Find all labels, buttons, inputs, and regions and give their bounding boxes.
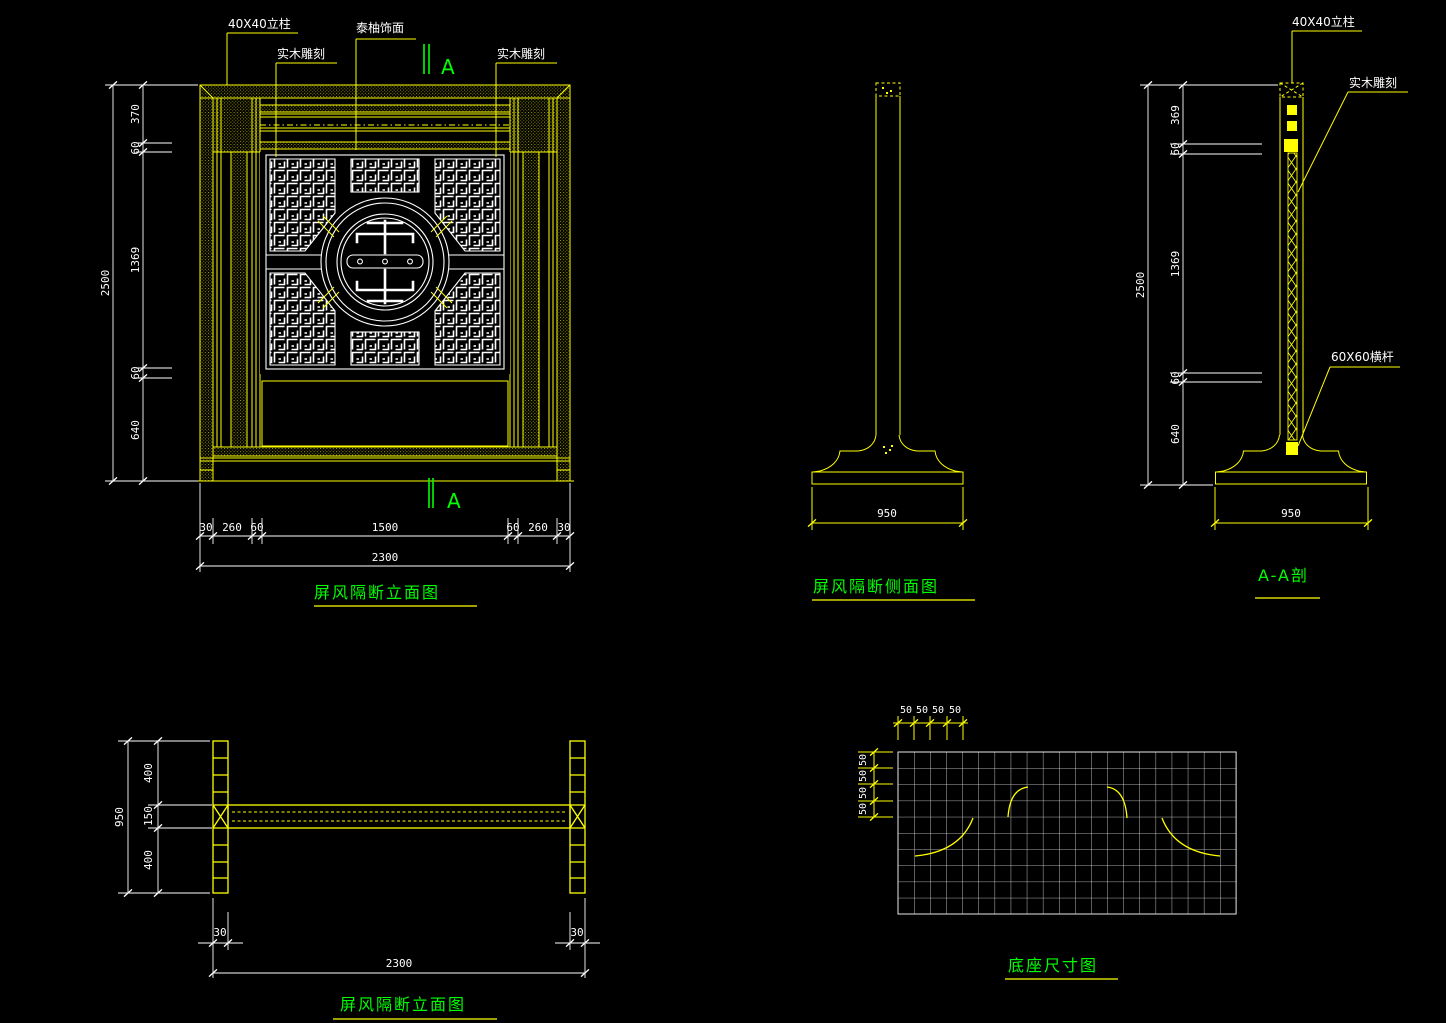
dim-w-260l: 260 [222, 521, 242, 534]
plan-cross-bar [228, 805, 570, 828]
aa-dim-369: 369 [1169, 105, 1182, 125]
base-top-50-1: 50 [900, 705, 912, 716]
front-left-dimensions: 2500 370 60 1369 60 640 [99, 81, 198, 484]
dim-w-260r: 260 [528, 521, 548, 534]
aa-lattice-strip [1288, 153, 1297, 440]
base-left-50-3: 50 [858, 787, 869, 799]
aa-block-1 [1287, 105, 1297, 115]
dim-seg-60a: 60 [129, 141, 142, 154]
dim-seg-640: 640 [129, 420, 142, 440]
plan-dim-30l: 30 [213, 926, 226, 939]
aa-callouts: 40X40立柱 实木雕刻 60X60横杆 [1292, 14, 1408, 446]
aa-rail-label: 60X60横杆 [1331, 350, 1394, 364]
side-width-dimension: 950 [808, 487, 967, 530]
plan-dim-950: 950 [113, 807, 126, 827]
side-view-title: 屏风隔断侧面图 [813, 577, 939, 596]
dim-w-1500: 1500 [372, 521, 399, 534]
cad-drawing: 40X40立柱 实木雕刻 泰柚饰面 实木雕刻 A A 2500 [0, 0, 1446, 1023]
cad-canvas: 40X40立柱 实木雕刻 泰柚饰面 实木雕刻 A A 2500 [0, 0, 1446, 1023]
plan-view: 950 400 150 400 30 30 2300 屏风隔断立面图 [113, 737, 600, 1019]
dim-w-30l: 30 [199, 521, 212, 534]
base-left-50-2: 50 [858, 770, 869, 782]
aa-dim-60a: 60 [1169, 142, 1182, 155]
callout-veneer-label: 泰柚饰面 [356, 20, 404, 35]
plan-bottom-dimensions: 30 30 2300 [198, 898, 600, 978]
aa-view-title: A-A剖 [1258, 566, 1309, 585]
aa-section-view: 40X40立柱 实木雕刻 60X60横杆 2500 [1134, 14, 1408, 598]
aa-dim-60b: 60 [1169, 371, 1182, 384]
plan-view-title: 屏风隔断立面图 [340, 995, 466, 1014]
callout-carving-left-label: 实木雕刻 [277, 46, 325, 61]
side-base-marks [883, 445, 893, 454]
section-letter-bottom: A [447, 489, 461, 513]
side-view: 950 屏风隔断侧面图 [808, 83, 975, 600]
base-left-dimensions: 50 50 50 50 [858, 748, 893, 820]
base-left-50-1: 50 [858, 754, 869, 766]
dim-seg-1369: 1369 [129, 247, 142, 274]
side-post-cap [876, 83, 900, 96]
aa-bottom-rail-block [1286, 442, 1298, 455]
aa-dim-1369: 1369 [1169, 251, 1182, 278]
front-view-title: 屏风隔断立面图 [314, 583, 440, 602]
section-mark-top: A [424, 44, 455, 79]
plan-dim-2300: 2300 [386, 957, 413, 970]
aa-block-3 [1284, 139, 1298, 152]
section-mark-bottom: A [429, 478, 461, 513]
callout-carving-right-label: 实木雕刻 [497, 46, 545, 61]
dim-w-60l: 60 [250, 521, 263, 534]
plan-dim-150: 150 [142, 806, 155, 826]
front-bottom-dimensions: 30 260 60 1500 60 260 30 2300 [196, 483, 574, 572]
side-base-profile [812, 435, 963, 484]
dim-w-30r: 30 [557, 521, 570, 534]
fret-band-bottom [351, 332, 419, 365]
aa-post-label: 40X40立柱 [1292, 14, 1355, 29]
plan-dim-400b: 400 [142, 850, 155, 870]
aa-dim-950: 950 [1281, 507, 1301, 520]
plan-left-post [213, 741, 228, 893]
plan-left-dimensions: 950 400 150 400 [113, 737, 212, 896]
dim-overall-width: 2300 [372, 551, 399, 564]
base-top-dimensions: 50 50 50 50 [893, 705, 968, 740]
frame-left-post [200, 98, 213, 481]
fret-band-top [351, 159, 419, 192]
aa-carving-label: 实木雕刻 [1349, 75, 1397, 90]
bottom-rail [213, 447, 557, 456]
plain-panel [262, 381, 508, 446]
base-top-50-2: 50 [916, 705, 928, 716]
front-elevation-view: 40X40立柱 实木雕刻 泰柚饰面 实木雕刻 A A 2500 [99, 16, 574, 606]
front-left-slat-zone [213, 98, 260, 447]
callout-post-label: 40X40立柱 [228, 16, 291, 31]
aa-block-2 [1287, 121, 1297, 131]
side-dim-950: 950 [877, 507, 897, 520]
section-letter-top: A [441, 55, 455, 79]
base-top-50-3: 50 [932, 705, 944, 716]
dim-seg-370: 370 [129, 104, 142, 124]
dim-seg-60b: 60 [129, 366, 142, 379]
base-view-title: 底座尺寸图 [1008, 956, 1098, 975]
aa-width-dimension: 950 [1211, 487, 1372, 530]
dim-w-60r: 60 [506, 521, 519, 534]
plan-dim-400a: 400 [142, 763, 155, 783]
aa-left-dimensions: 2500 369 60 1369 60 640 [1134, 81, 1278, 488]
base-grid [898, 752, 1236, 914]
aa-dim-overall-height: 2500 [1134, 272, 1147, 299]
front-ornament-panel [260, 152, 510, 374]
base-grid-view: 50 50 50 50 50 50 50 50 底座尺寸图 [858, 705, 1236, 979]
front-right-slat-zone [510, 98, 557, 447]
plan-dim-30r: 30 [570, 926, 583, 939]
frame-right-post [557, 98, 570, 481]
aa-dim-640: 640 [1169, 424, 1182, 444]
base-top-50-4: 50 [949, 705, 961, 716]
front-top-rails [260, 105, 510, 149]
plan-right-post [570, 741, 585, 893]
frame-top-rail [200, 85, 570, 98]
dim-overall-height: 2500 [99, 270, 112, 297]
aa-post [1280, 83, 1303, 455]
base-left-50-4: 50 [858, 803, 869, 815]
